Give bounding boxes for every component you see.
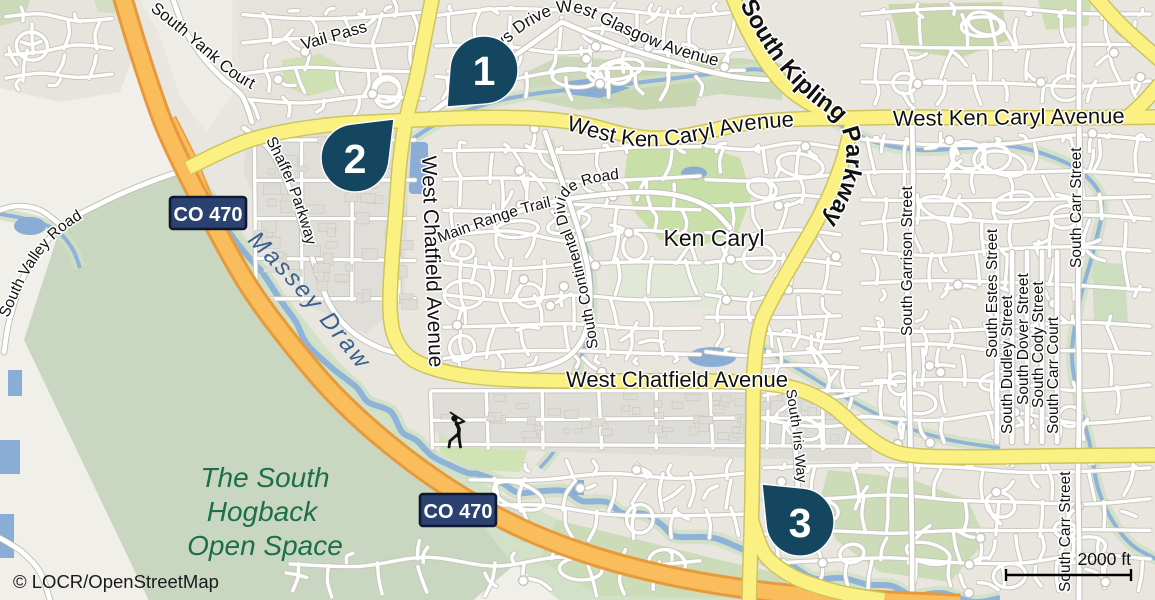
svg-text:2000 ft: 2000 ft — [1077, 549, 1131, 569]
svg-text:1: 1 — [473, 48, 496, 94]
svg-text:3: 3 — [789, 500, 812, 546]
svg-text:South Garrison Street: South Garrison Street — [899, 185, 916, 336]
svg-text:South Dudley Street: South Dudley Street — [999, 295, 1016, 434]
svg-text:South Carr Court: South Carr Court — [1045, 316, 1062, 434]
svg-text:CO 470: CO 470 — [174, 204, 243, 226]
svg-text:West Chatfield Avenue: West Chatfield Avenue — [566, 367, 788, 392]
svg-text:© LOCR/OpenStreetMap: © LOCR/OpenStreetMap — [13, 571, 219, 592]
svg-text:CO 470: CO 470 — [424, 501, 493, 523]
svg-text:Ken Caryl: Ken Caryl — [664, 225, 765, 251]
svg-text:Hogback: Hogback — [207, 496, 320, 527]
svg-text:Open Space: Open Space — [187, 530, 343, 561]
svg-text:South Carr Street: South Carr Street — [1068, 147, 1085, 268]
svg-text:West Ken Caryl Avenue: West Ken Caryl Avenue — [893, 103, 1125, 131]
svg-text:The South: The South — [200, 462, 329, 493]
svg-text:2: 2 — [344, 136, 367, 182]
